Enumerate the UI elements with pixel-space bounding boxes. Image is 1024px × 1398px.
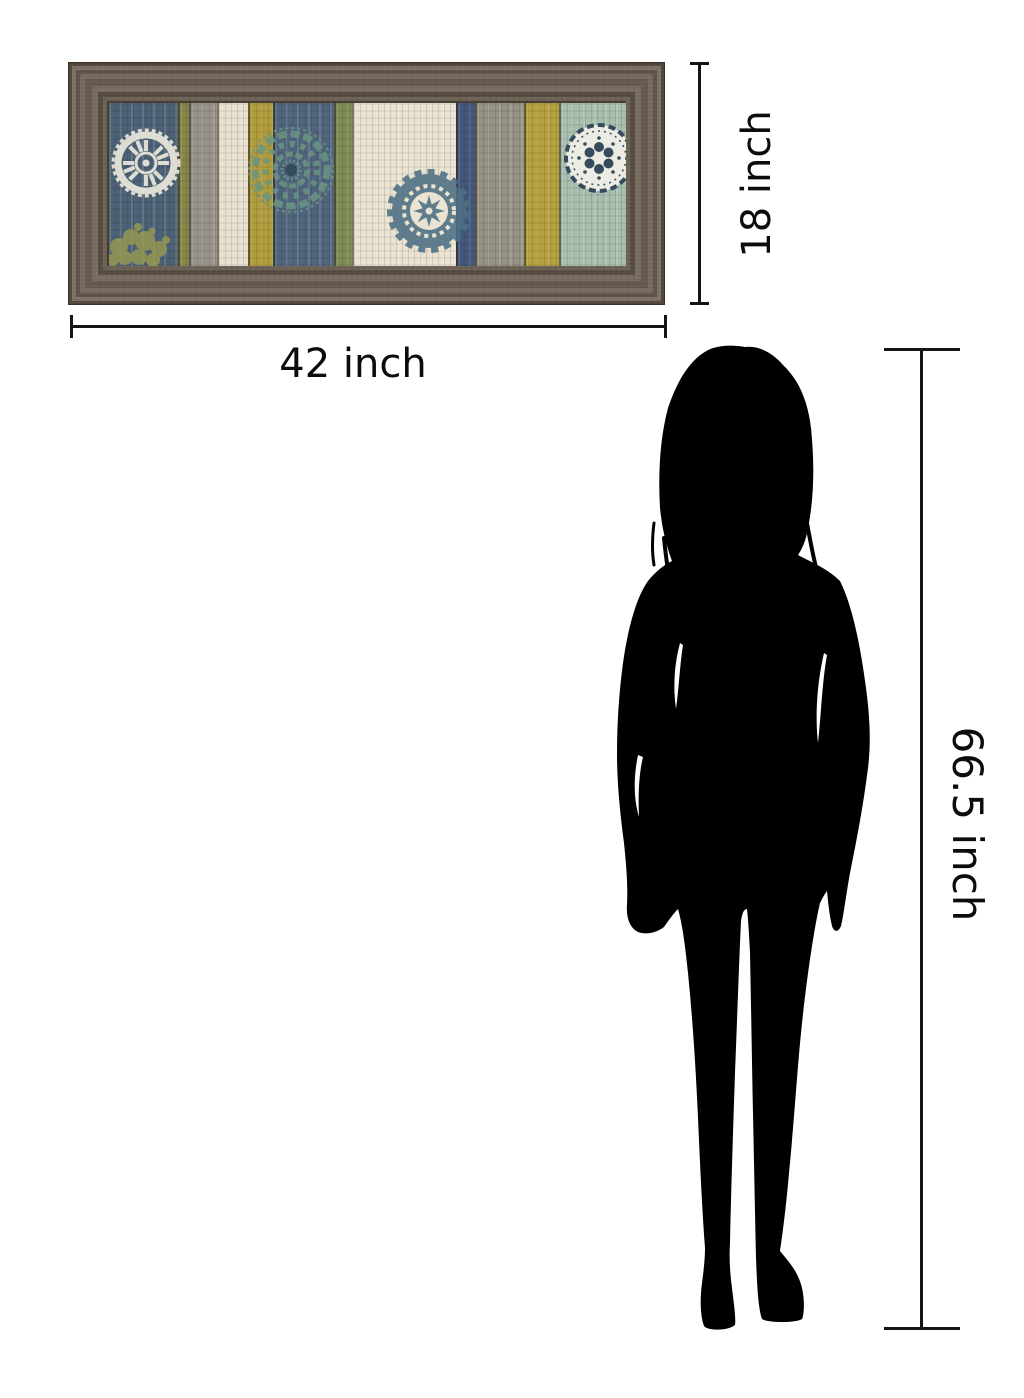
plank xyxy=(559,103,626,266)
plank xyxy=(189,103,217,266)
plank xyxy=(524,103,559,266)
plank xyxy=(475,103,524,266)
height-dimension-cap-bottom xyxy=(690,302,709,305)
width-dimension-line xyxy=(70,325,667,328)
height-dimension-line xyxy=(698,62,701,305)
plank xyxy=(178,103,189,266)
height-dimension-cap-top xyxy=(690,62,709,65)
plank xyxy=(248,103,273,266)
person-height-cap-top xyxy=(884,348,960,351)
height-dimension-label: 18 inch xyxy=(737,110,777,257)
width-dimension-label: 42 inch xyxy=(279,344,426,384)
plank xyxy=(109,103,178,266)
picture-frame xyxy=(68,62,665,305)
plank xyxy=(456,103,475,266)
plank xyxy=(352,103,456,266)
plank xyxy=(273,103,334,266)
artwork-canvas xyxy=(109,103,626,266)
width-dimension-cap-right xyxy=(664,315,667,338)
person-height-dimension-label: 66.5 inch xyxy=(946,727,988,922)
person-height-cap-bottom xyxy=(884,1327,960,1330)
woman-silhouette xyxy=(608,343,880,1333)
size-comparison-graphic: 18 inch 42 inch 66.5 inch xyxy=(0,0,1024,1398)
plank xyxy=(217,103,248,266)
width-dimension-cap-left xyxy=(70,315,73,338)
plank xyxy=(334,103,352,266)
person-height-dimension-line xyxy=(920,348,923,1330)
